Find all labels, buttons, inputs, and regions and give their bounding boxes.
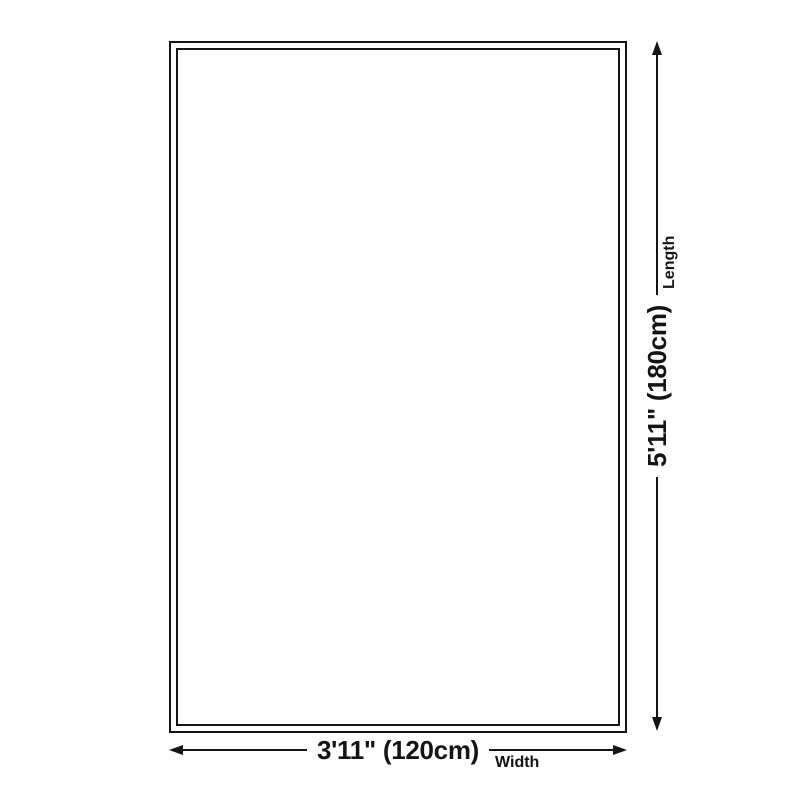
arrow-up-icon bbox=[652, 41, 662, 55]
width-dimension: 3'11" (120cm) Width bbox=[169, 737, 627, 763]
width-value: 3'11" (120cm) bbox=[307, 737, 489, 763]
width-line-segment: Width bbox=[489, 749, 613, 751]
length-value: 5'11" (180cm) bbox=[644, 295, 670, 477]
length-line-segment bbox=[656, 477, 658, 717]
rug-outline bbox=[169, 41, 627, 733]
arrow-right-icon bbox=[613, 745, 627, 755]
arrow-left-icon bbox=[169, 745, 183, 755]
length-label: Length bbox=[661, 236, 679, 289]
arrow-down-icon bbox=[652, 717, 662, 731]
width-line-segment bbox=[183, 749, 307, 751]
length-dimension: 5'11" (180cm) Length bbox=[644, 41, 670, 731]
width-label: Width bbox=[495, 754, 539, 772]
dimension-diagram: 3'11" (120cm) Width 5'11" (180cm) Length bbox=[0, 0, 800, 800]
rug-inner-border bbox=[176, 48, 620, 726]
length-line-segment: Length bbox=[656, 55, 658, 295]
